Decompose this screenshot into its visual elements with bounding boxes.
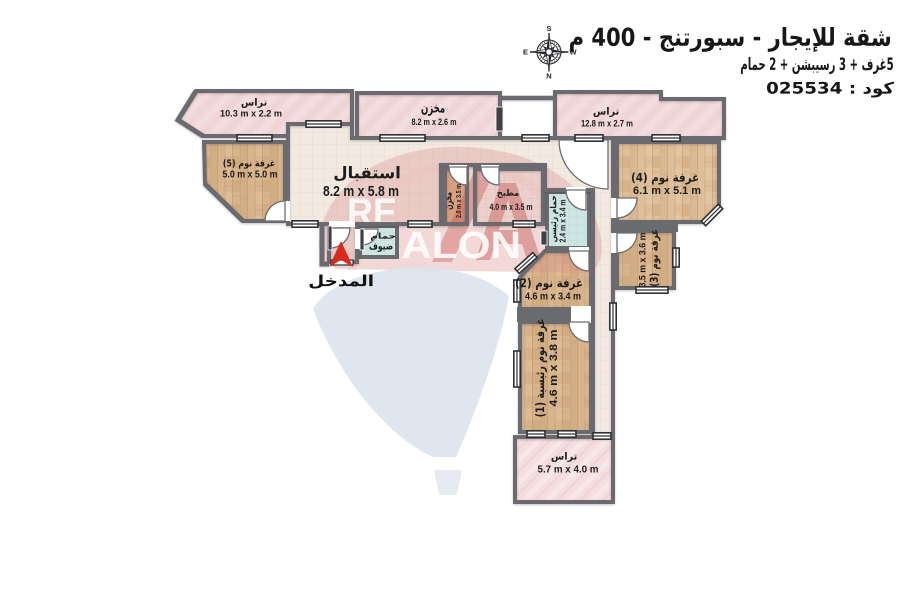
svg-text:5.7 m x 4.0 m: 5.7 m x 4.0 m xyxy=(538,465,599,476)
svg-text:8.2 m x 5.8 m: 8.2 m x 5.8 m xyxy=(323,184,399,200)
svg-text:6.1 m x 5.1 m: 6.1 m x 5.1 m xyxy=(633,185,701,197)
svg-text:3.5 m x 3.6 m: 3.5 m x 3.6 m xyxy=(638,233,649,288)
svg-text:4.0 m x 3.5 m: 4.0 m x 3.5 m xyxy=(490,202,533,213)
svg-text:W: W xyxy=(569,48,577,57)
svg-text:4.6 m x 3.4 m: 4.6 m x 3.4 m xyxy=(525,291,581,303)
svg-text:8.2 m x 2.6 m: 8.2 m x 2.6 m xyxy=(412,117,457,128)
svg-text:N: N xyxy=(546,72,551,81)
svg-text:5.0 m x 5.0 m: 5.0 m x 5.0 m xyxy=(223,170,278,181)
svg-text:E: E xyxy=(523,48,528,57)
svg-text:2.4 m x 3.4 m: 2.4 m x 3.4 m xyxy=(559,200,568,243)
svg-text:10.3 m x 2.2 m: 10.3 m x 2.2 m xyxy=(220,109,282,120)
svg-text:S: S xyxy=(546,24,551,33)
svg-text:12.8 m x 2.7 m: 12.8 m x 2.7 m xyxy=(581,119,633,130)
svg-text:4.6 m x 3.8 m: 4.6 m x 3.8 m xyxy=(548,329,560,406)
svg-text:2.0 m x 3.5 m: 2.0 m x 3.5 m xyxy=(454,184,463,218)
